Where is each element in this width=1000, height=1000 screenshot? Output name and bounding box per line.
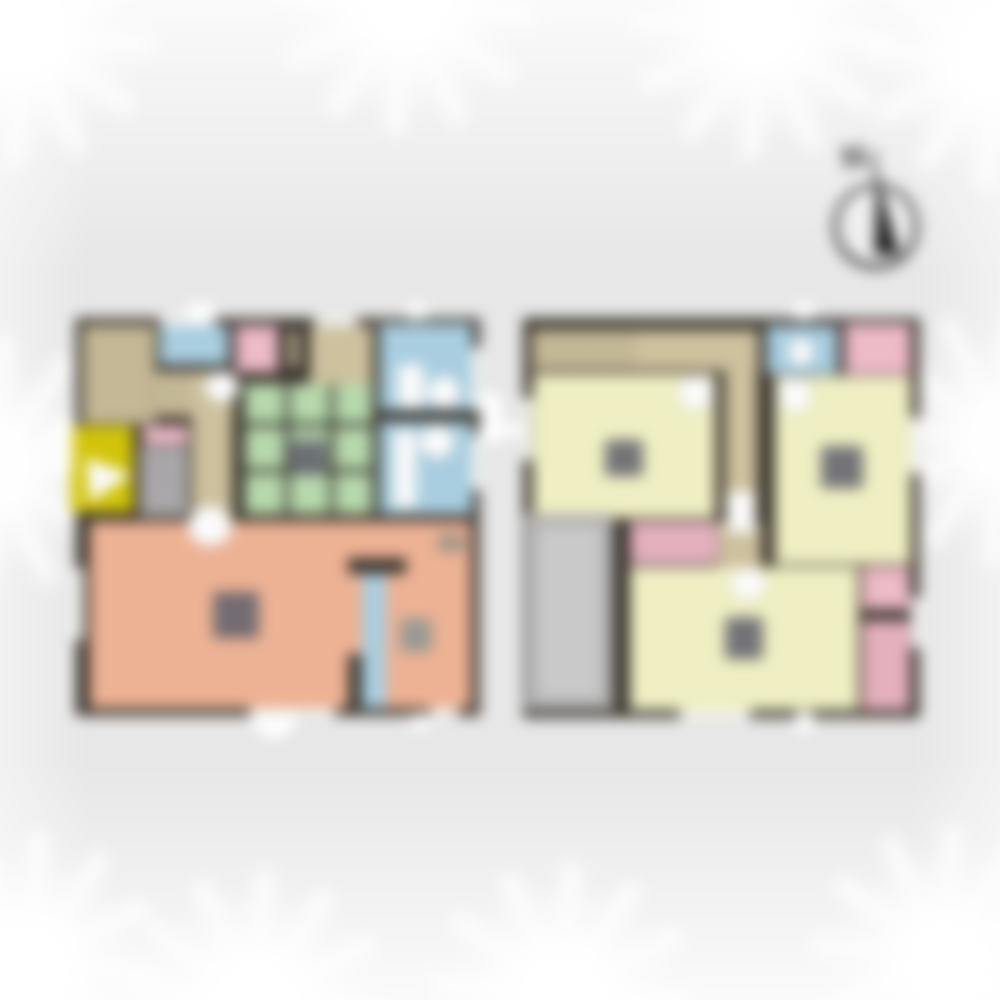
- tatami-room: [245, 384, 372, 514]
- exterior-window-tab: [185, 303, 215, 320]
- window-marker: [430, 708, 458, 716]
- compass-north-label: N: [830, 134, 877, 179]
- bedroom-1-door-swing: [678, 376, 714, 410]
- kitchen-appliance: [400, 618, 432, 652]
- toilet-fixture: [789, 338, 813, 366]
- closet-bottom-right-lower: [862, 621, 910, 710]
- balcony: [525, 514, 613, 710]
- window-marker: [680, 710, 750, 718]
- flare-bottom-right: [813, 825, 1000, 1000]
- vanity-fixture: [394, 430, 416, 508]
- blurred-plan-layer: N: [0, 0, 1000, 1000]
- door-swing: [428, 376, 460, 408]
- upper-hall-landing: [310, 326, 372, 384]
- window-marker: [472, 348, 480, 410]
- second-floor-plan: [523, 318, 920, 718]
- bedroom-1-label-blob: [605, 440, 643, 476]
- window-marker: [911, 598, 920, 648]
- flare-top-left: [0, 0, 155, 165]
- kitchen-counter: [362, 574, 386, 708]
- staircase-treads: [532, 330, 637, 370]
- flare-bottom-center: [432, 862, 692, 1000]
- flare-top-right: [630, 0, 890, 160]
- bedroom-2-label-blob: [821, 446, 863, 488]
- toilet-fixture: [398, 364, 424, 408]
- flare-top-center: [275, 0, 535, 135]
- closet-middle: [630, 522, 718, 564]
- kitchen-wall-stub: [348, 654, 362, 708]
- window-marker: [75, 568, 83, 640]
- exterior-window-tab: [407, 303, 427, 320]
- storage-shelf: [289, 330, 298, 368]
- closet-top: [236, 326, 278, 372]
- entrance-porch: [70, 426, 133, 512]
- shoe-closet: [143, 426, 188, 444]
- storage-nook: [283, 326, 305, 372]
- ldk-label-blob: [213, 592, 259, 638]
- bedroom-2-door-swing: [778, 378, 812, 412]
- window-marker: [911, 418, 920, 473]
- floor-plan-screenshot: N: [0, 0, 1000, 1000]
- window-marker: [523, 398, 532, 460]
- closet-top-right: [845, 324, 911, 374]
- window-marker: [472, 436, 480, 490]
- flare-bottom-center-left: [125, 870, 385, 1000]
- staircase: [83, 326, 155, 424]
- toilet: [767, 326, 837, 374]
- door-swing: [420, 426, 454, 458]
- corridor-door-gap: [727, 492, 755, 532]
- porch-step: [50, 420, 72, 470]
- side-window-tab: [478, 424, 526, 436]
- entry-hall-genkan: [140, 446, 188, 516]
- washroom-upper-left: [160, 326, 228, 364]
- flare-right-upper: [865, 0, 1000, 190]
- window-marker: [250, 708, 335, 716]
- hallway-door-swing: [188, 506, 232, 546]
- bedroom-3-label-blob: [725, 617, 763, 659]
- bathroom: [380, 324, 472, 410]
- ldk-corner-label-blob: [438, 534, 464, 552]
- kitchen-partition-wall: [348, 558, 406, 574]
- hallway-door-swing: [205, 372, 239, 402]
- bedroom-3-door-swing: [730, 568, 766, 600]
- living-dining-kitchen: [90, 522, 471, 708]
- upstairs-corridor: [725, 330, 757, 515]
- exterior-window-tab: [793, 303, 815, 320]
- exterior-window-tab: [410, 714, 430, 729]
- closet-bottom-right-upper: [862, 567, 910, 609]
- window-marker: [315, 318, 357, 326]
- washroom: [380, 422, 472, 514]
- exterior-door-swing: [252, 716, 296, 738]
- entrance-door-swing: [86, 452, 132, 502]
- balcony-floor: [537, 526, 601, 698]
- first-floor-plan: [75, 318, 480, 716]
- tatami-room-label-blob: [289, 440, 327, 474]
